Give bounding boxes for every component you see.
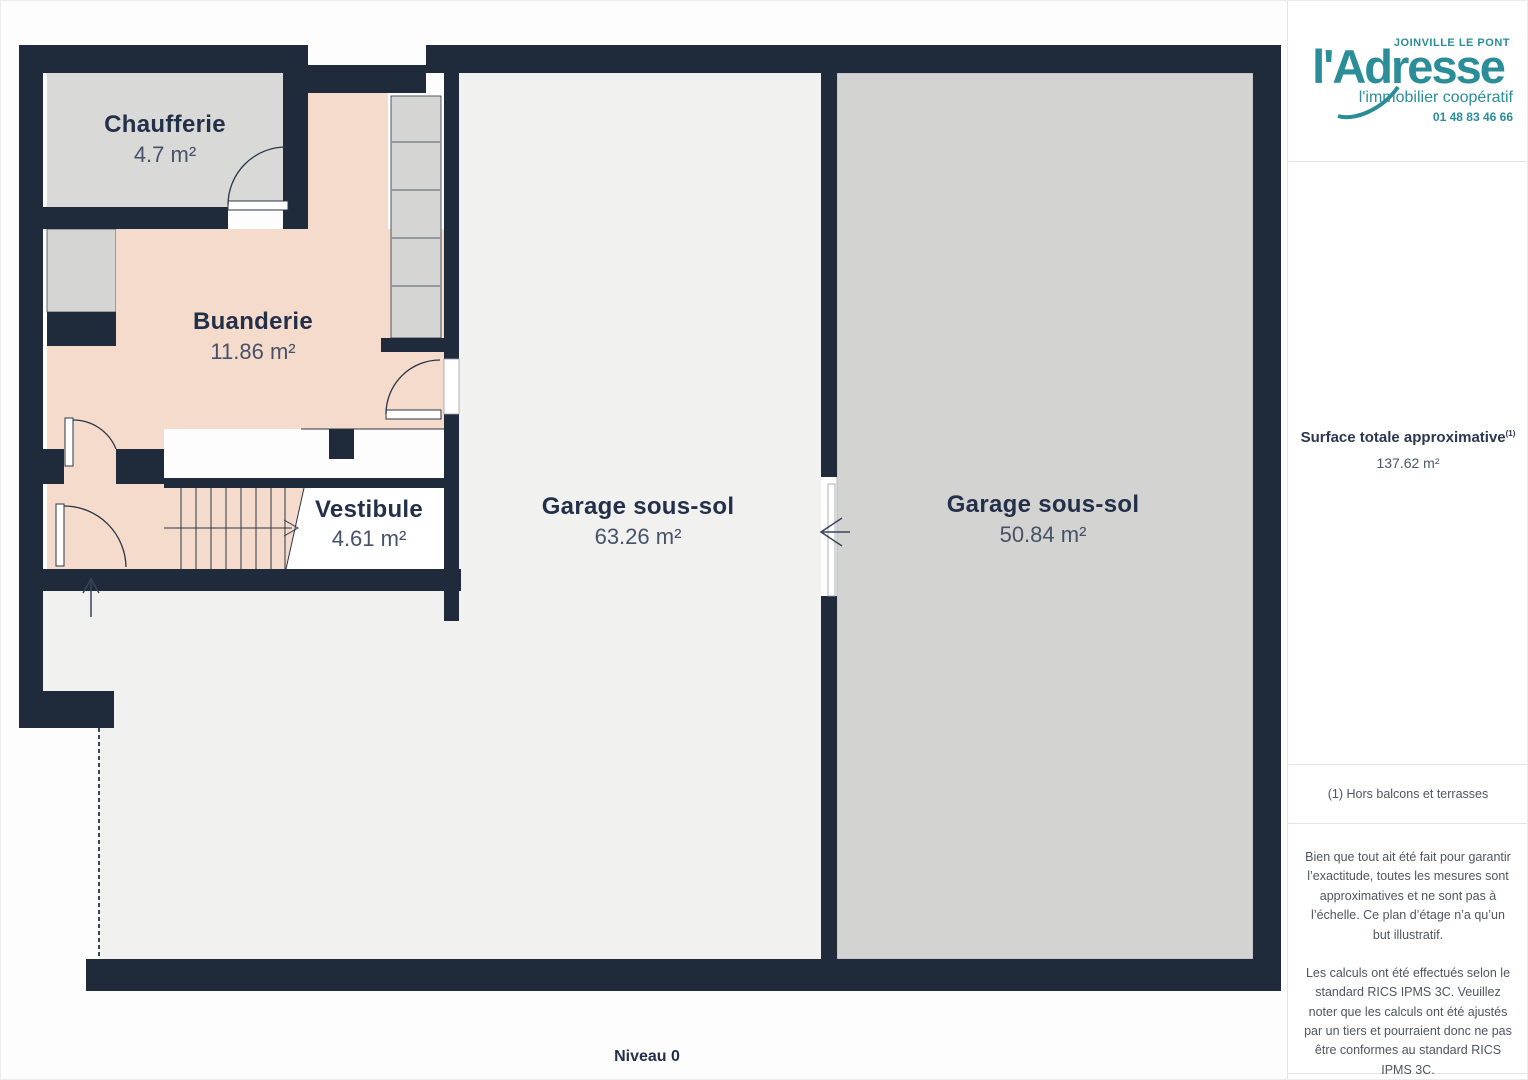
surface-total-block: Surface totale approximative(1) 137.62 m… (1288, 429, 1528, 471)
floorplan-page: Chaufferie 4.7 m² Buanderie 11.86 m² Ves… (0, 0, 1528, 1080)
info-sidebar: JOINVILLE LE PONT l'Adresse l'immobilier… (1287, 1, 1528, 1080)
room-label-chaufferie: Chaufferie (104, 111, 226, 138)
level-label: Niveau 0 (614, 1048, 680, 1065)
room-label-vestibule: Vestibule (315, 496, 423, 523)
brand-logo: JOINVILLE LE PONT l'Adresse l'immobilier… (1288, 1, 1528, 162)
room-label-garage-1: Garage sous-sol (542, 493, 735, 520)
brand-swoosh-icon (1336, 85, 1406, 125)
surface-total-label-text: Surface totale approximative (1301, 429, 1506, 446)
room-chaufferie-fill (47, 73, 283, 207)
disclaimer-accuracy: Bien que tout ait été fait pour garantir… (1301, 848, 1515, 945)
utility-strip-fill (391, 96, 441, 338)
surface-total-label: Surface totale approximative(1) (1288, 429, 1528, 446)
room-label-garage-2: Garage sous-sol (947, 491, 1140, 518)
room-label-buanderie: Buanderie (193, 308, 313, 335)
room-area-garage-2: 50.84 m² (1000, 522, 1087, 547)
buanderie-door-gap (444, 359, 459, 414)
storage-nook-fill (47, 229, 116, 312)
room-area-buanderie: 11.86 m² (210, 339, 295, 364)
brand-phone: 01 48 83 46 66 (1288, 110, 1528, 124)
disclaimer-block: Bien que tout ait été fait pour garantir… (1288, 824, 1528, 1074)
room-area-vestibule: 4.61 m² (332, 526, 407, 551)
room-area-chaufferie: 4.7 m² (134, 142, 196, 167)
room-area-garage-1: 63.26 m² (595, 524, 682, 549)
footnote-text: (1) Hors balcons et terrasses (1328, 787, 1488, 801)
floor-plan-svg: Chaufferie 4.7 m² Buanderie 11.86 m² Ves… (1, 1, 1287, 1080)
surface-total-value: 137.62 m² (1288, 455, 1528, 471)
footnote: (1) Hors balcons et terrasses (1288, 764, 1528, 824)
surface-total-superscript: (1) (1506, 429, 1516, 438)
disclaimer-standard: Les calculs ont été effectués selon le s… (1301, 964, 1515, 1080)
brand-name: l'Adresse (1288, 43, 1528, 90)
